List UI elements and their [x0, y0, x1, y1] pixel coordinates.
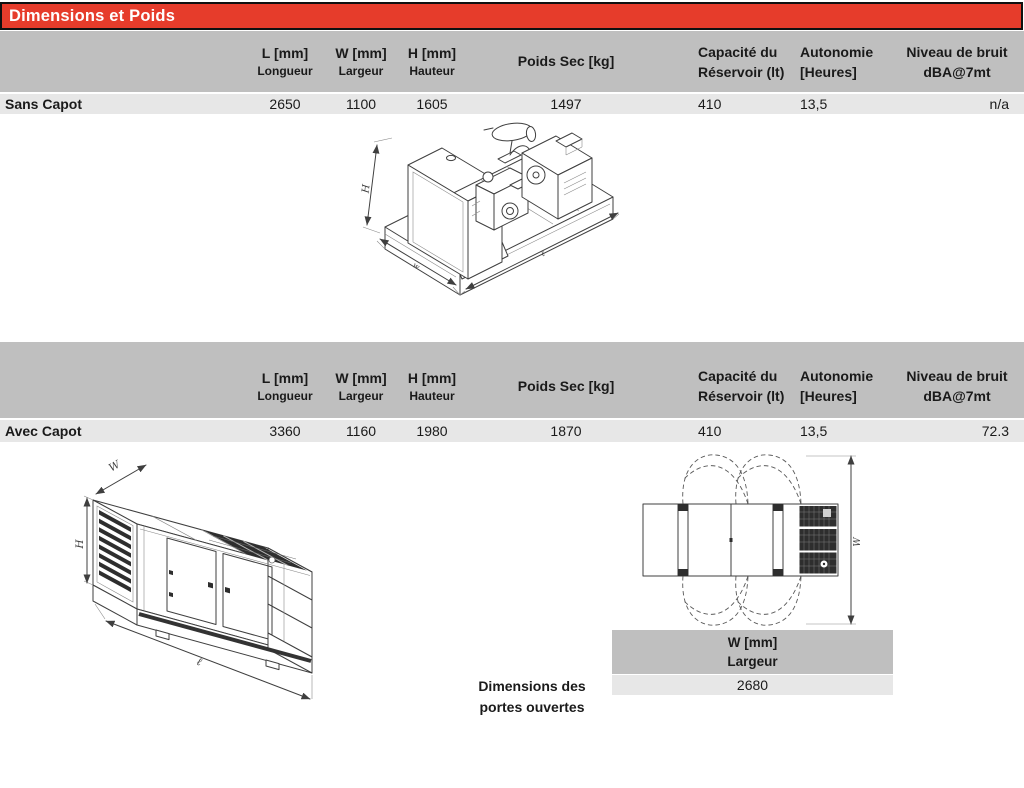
- value-autonomie: 13,5: [790, 423, 890, 439]
- value-capacite: 410: [660, 96, 790, 112]
- header-cell-bruit: Niveau de bruit dBA@7mt: [890, 342, 1024, 418]
- roof-grilles: [800, 506, 837, 574]
- section-title: Dimensions et Poids: [9, 7, 175, 26]
- row-label: Sans Capot: [0, 96, 240, 112]
- header-cell-w: W [mm] Largeur: [330, 31, 392, 92]
- table-sans-capot-header: L [mm] Longueur W [mm] Largeur H [mm] Ha…: [0, 31, 1024, 92]
- table-sans-capot: L [mm] Longueur W [mm] Largeur H [mm] Ha…: [0, 31, 1024, 114]
- section-title-bar: Dimensions et Poids: [0, 2, 1023, 30]
- canopy-genset-drawing: H W ℓ: [82, 452, 336, 704]
- value-bruit: 72.3: [890, 423, 1024, 439]
- header-cell-poids: Poids Sec [kg]: [472, 31, 660, 92]
- value-poids: 1497: [472, 96, 660, 112]
- l-dim-label: ℓ: [195, 655, 204, 669]
- doors-table-value: 2680: [612, 675, 893, 695]
- value-w: 1160: [330, 423, 392, 439]
- value-poids: 1870: [472, 423, 660, 439]
- value-h: 1605: [392, 96, 472, 112]
- header-cell-w: W [mm] Largeur: [330, 342, 392, 418]
- header-cell-poids: Poids Sec [kg]: [472, 342, 660, 418]
- header-cell-capacite: Capacité du Réservoir (lt): [660, 342, 790, 418]
- header-empty: [0, 342, 240, 418]
- doors-table-header: W [mm] Largeur: [612, 630, 893, 674]
- open-doors-top-view-drawing: W: [638, 452, 873, 632]
- table-avec-capot-header: L [mm] Longueur W [mm] Largeur H [mm] Ha…: [0, 342, 1024, 418]
- header-cell-h: H [mm] Hauteur: [392, 342, 472, 418]
- row-avec-capot: Avec Capot 3360 1160 1980 1870 410 13,5 …: [0, 420, 1024, 442]
- header-cell-l: L [mm] Longueur: [240, 342, 330, 418]
- value-h: 1980: [392, 423, 472, 439]
- table-avec-capot: L [mm] Longueur W [mm] Largeur H [mm] Ha…: [0, 342, 1024, 442]
- value-bruit: n/a: [890, 96, 1024, 112]
- value-l: 2650: [240, 96, 330, 112]
- header-cell-bruit: Niveau de bruit dBA@7mt: [890, 31, 1024, 92]
- header-empty: [0, 31, 240, 92]
- row-label: Avec Capot: [0, 423, 240, 439]
- value-capacite: 410: [660, 423, 790, 439]
- open-genset-drawing: H w ℓ: [360, 115, 652, 327]
- header-cell-autonomie: Autonomie [Heures]: [790, 31, 890, 92]
- header-cell-l: L [mm] Longueur: [240, 31, 330, 92]
- h-dim-label: H: [360, 183, 372, 194]
- row-sans-capot: Sans Capot 2650 1100 1605 1497 410 13,5 …: [0, 94, 1024, 114]
- header-cell-h: H [mm] Hauteur: [392, 31, 472, 92]
- value-w: 1100: [330, 96, 392, 112]
- header-cell-capacite: Capacité du Réservoir (lt): [660, 31, 790, 92]
- value-autonomie: 13,5: [790, 96, 890, 112]
- dimension-w: W: [96, 458, 146, 494]
- doors-caption: Dimensions des portes ouvertes: [452, 676, 612, 717]
- header-cell-autonomie: Autonomie [Heures]: [790, 342, 890, 418]
- doors-width-table: W [mm] Largeur 2680: [612, 630, 893, 695]
- dimension-h: H: [74, 496, 93, 585]
- dimension-h: H: [360, 138, 392, 233]
- datasheet-page: Dimensions et Poids L [mm] Longueur W [m…: [0, 0, 1024, 788]
- w-dim-label: W: [107, 458, 123, 474]
- w-dim-label: W: [853, 537, 863, 547]
- value-l: 3360: [240, 423, 330, 439]
- h-dim-label: H: [74, 539, 86, 550]
